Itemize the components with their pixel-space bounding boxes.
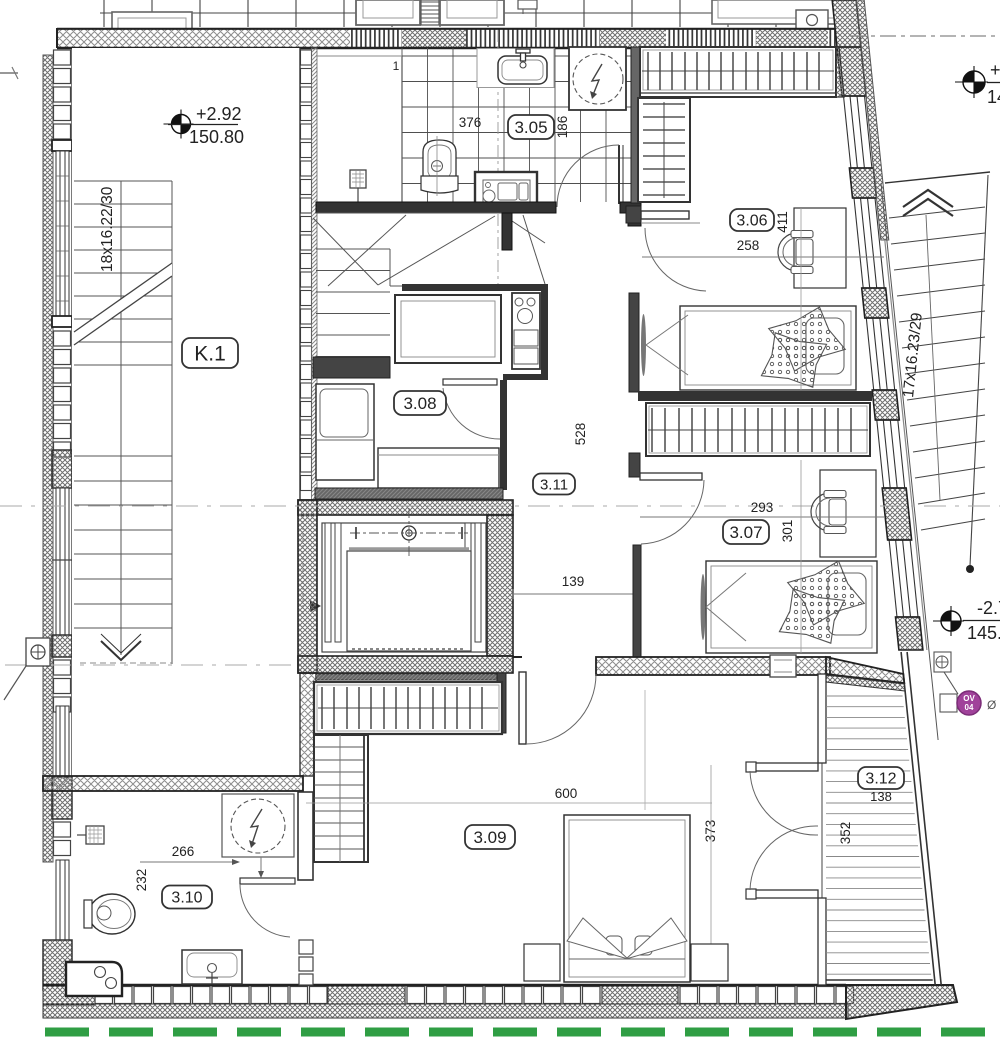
svg-text:18x16.22/30: 18x16.22/30 — [99, 186, 116, 272]
svg-text:3.06: 3.06 — [736, 213, 767, 230]
svg-text:+2.92: +2.92 — [196, 104, 242, 124]
svg-text:138: 138 — [870, 789, 892, 804]
svg-text:411: 411 — [775, 211, 790, 233]
svg-text:3.05: 3.05 — [514, 118, 547, 137]
svg-text:3.11: 3.11 — [540, 476, 568, 493]
svg-text:+3.: +3. — [990, 60, 1000, 80]
svg-text:266: 266 — [172, 844, 195, 859]
svg-text:3.12: 3.12 — [865, 771, 896, 788]
svg-text:3.08: 3.08 — [403, 394, 436, 413]
svg-text:3.09: 3.09 — [473, 828, 506, 847]
svg-text:186: 186 — [555, 116, 570, 139]
svg-text:600: 600 — [555, 786, 578, 801]
svg-text:-2.7: -2.7 — [977, 598, 1000, 618]
svg-text:373: 373 — [703, 820, 718, 843]
svg-text:3.07: 3.07 — [729, 523, 762, 542]
svg-text:293: 293 — [751, 500, 774, 515]
svg-text:1: 1 — [393, 59, 400, 73]
svg-text:258: 258 — [737, 238, 760, 253]
svg-text:14: 14 — [987, 87, 1000, 107]
svg-text:301: 301 — [780, 520, 795, 543]
svg-text:3.10: 3.10 — [171, 890, 202, 907]
svg-text:352: 352 — [838, 822, 853, 845]
svg-text:139: 139 — [562, 574, 585, 589]
svg-text:K.1: K.1 — [194, 342, 226, 365]
svg-text:528: 528 — [573, 423, 588, 446]
svg-text:232: 232 — [134, 869, 149, 892]
svg-text:OV: OV — [963, 694, 975, 703]
svg-text:04: 04 — [965, 703, 974, 712]
svg-text:150.80: 150.80 — [189, 127, 244, 147]
svg-text:Ø: Ø — [987, 698, 996, 712]
svg-text:145.0: 145.0 — [967, 623, 1000, 643]
svg-text:376: 376 — [459, 115, 482, 130]
